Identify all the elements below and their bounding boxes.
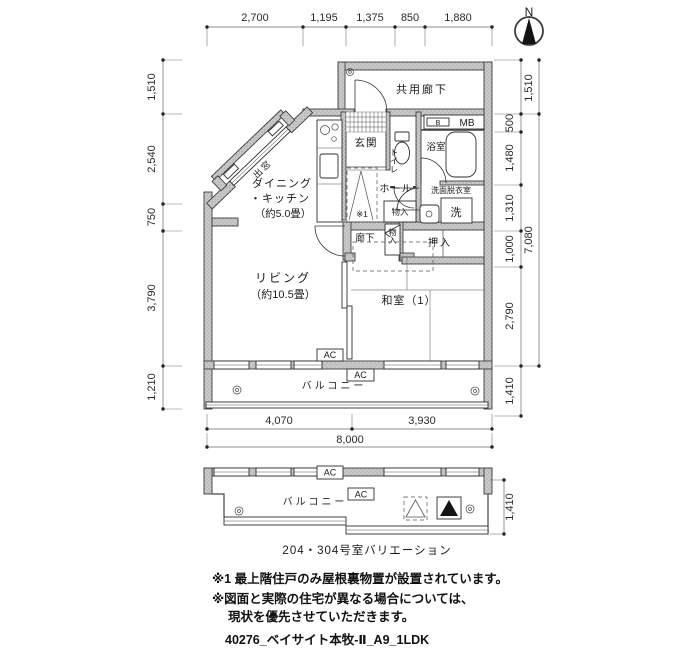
vanity (420, 205, 439, 223)
entrance-label: 玄関 (355, 136, 378, 149)
note-line-2: ※図面と実際の住宅が異なる場合については、 (212, 591, 474, 606)
ac-label: AC (354, 370, 367, 380)
variation-caption: 204・304号室バリエーション (282, 543, 451, 557)
dining-kitchen-label-1: ダイニング (252, 176, 312, 190)
note-line-1: ※1 最上階住戸のみ屋根裏物置が設置されています。 (212, 571, 508, 586)
attic-storage-hall: ※1 (347, 168, 377, 222)
dim-right-1480: 1,480 (504, 144, 516, 172)
dim-left-3: 750 (146, 208, 158, 226)
toilet-label: トイレ (389, 148, 399, 174)
dimension-left: 1,510 2,540 750 3,790 1,210 (146, 58, 182, 410)
living-label-2: （約10.5畳） (250, 287, 315, 301)
meter-box-b-label: B (436, 120, 441, 127)
dim-right-1000: 1,000 (504, 235, 516, 263)
closet-label: 押入 (428, 236, 452, 249)
sliding-partition (342, 262, 352, 359)
dimension-variation-right: 1,410 (490, 478, 516, 535)
dim-top-4: 850 (401, 12, 419, 24)
entrance-door-arc (355, 80, 387, 112)
dim-right-1410: 1,410 (504, 377, 516, 405)
dim-right-1310: 1,310 (504, 194, 516, 222)
north-indicator: N (515, 5, 543, 45)
dim-left-2: 2,540 (146, 145, 158, 173)
floor-plan-page: 2,700 1,195 1,375 850 1,880 N 1,510 2,54… (0, 0, 700, 650)
washroom-label: 洗面脱衣室 (431, 185, 471, 195)
dim-right-2790: 2,790 (504, 302, 516, 330)
balcony-railing (206, 402, 488, 408)
japanese-room-label: 和室（1） (381, 293, 436, 307)
dim-left-4: 3,790 (146, 284, 158, 312)
dim-bottom-4070: 4,070 (265, 415, 293, 427)
dim-left-1: 1,510 (146, 73, 158, 101)
triangle-outline-icon (406, 500, 425, 517)
dim-top-3: 1,375 (356, 12, 384, 24)
attic-ref-label: ※1 (356, 209, 368, 219)
hall-storage-label: 物入 (391, 207, 409, 217)
kitchen-counter (317, 120, 342, 222)
dim-top-5: 1,880 (444, 12, 472, 24)
variation-balcony-label: バルコニー (283, 496, 348, 508)
drawing-code: 40276_ベイサイト本牧-Ⅱ_A9_1LDK (225, 632, 429, 647)
dim-left-5: 1,210 (146, 373, 158, 401)
ac-label: AC (324, 468, 337, 478)
ac-label: AC (324, 350, 337, 360)
dim-right-1510: 1,510 (523, 74, 535, 102)
dimension-right-outer: 1,510 7,080 (523, 58, 541, 367)
washer-label: 洗 (451, 206, 462, 219)
tatami-lines (351, 257, 484, 361)
dim-right-7080: 7,080 (523, 226, 535, 254)
hall-storage: 物入 (384, 201, 416, 222)
common-corridor-label: 共用廊下 (396, 82, 448, 96)
dimension-top: 2,700 1,195 1,375 850 1,880 (205, 12, 493, 46)
floor-plan-drawing: 2,700 1,195 1,375 850 1,880 N 1,510 2,54… (0, 0, 700, 650)
meter-box-label: MB (460, 118, 475, 129)
bath-label: 浴室 (426, 141, 445, 153)
balcony-label: バルコニー (302, 380, 367, 392)
kitchen-sink (320, 154, 338, 178)
corridor-label: 廊下 (355, 232, 374, 244)
ac-label: AC (355, 490, 368, 500)
dim-top-1: 2,700 (241, 12, 269, 24)
dim-bottom-3930: 3,930 (408, 415, 436, 427)
dining-kitchen-label-3: （約5.0畳） (255, 207, 312, 220)
living-label-1: リビング (255, 271, 311, 285)
note-line-3: 現状を優先させていただきます。 (228, 609, 414, 624)
dim-top-2: 1,195 (310, 12, 338, 24)
dim-variation-1410: 1,410 (504, 493, 516, 521)
dim-right-500: 500 (504, 114, 516, 132)
meter-box: B MB (421, 115, 484, 130)
dimension-bottom: 4,070 3,930 8,000 (205, 414, 493, 449)
living-door-arc (315, 226, 345, 256)
hall-label: ホール (380, 183, 413, 195)
bath-door-arc (421, 158, 446, 183)
corridor-storage-label: 物入 (388, 227, 397, 244)
dim-bottom-8000: 8,000 (336, 434, 364, 446)
north-arrow-icon (522, 18, 536, 44)
washroom-fixtures (420, 198, 472, 223)
dining-kitchen-label-2: ・キッチン (250, 192, 310, 205)
bathtub (446, 132, 476, 177)
